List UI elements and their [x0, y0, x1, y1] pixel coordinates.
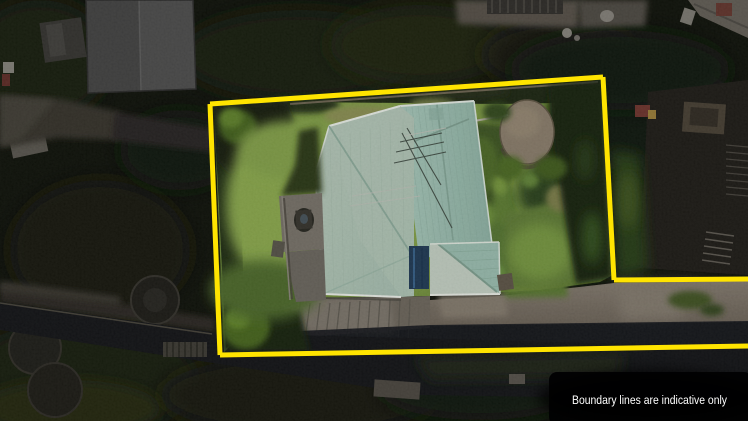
svg-text:Boundary lines are indicative: Boundary lines are indicative only — [572, 393, 728, 407]
